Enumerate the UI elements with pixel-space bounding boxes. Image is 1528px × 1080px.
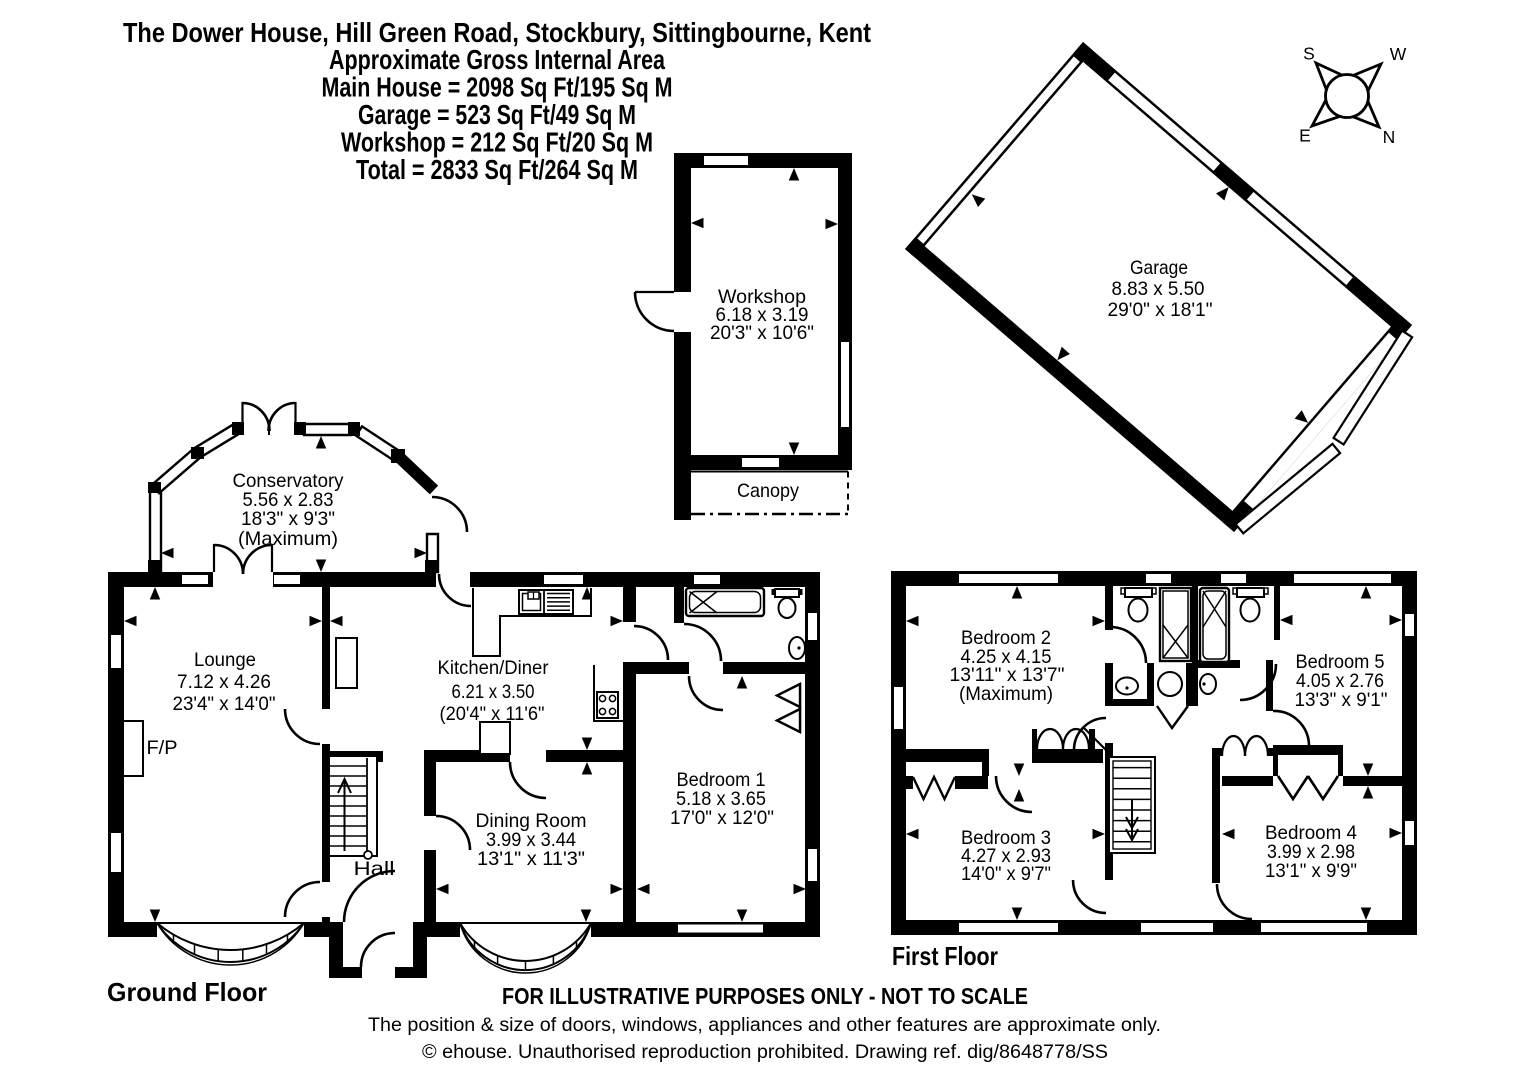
svg-text:20'3" x 10'6": 20'3" x 10'6" [710,322,814,344]
svg-text:13'1" x 9'9": 13'1" x 9'9" [1265,860,1357,882]
svg-text:13'3" x 9'1": 13'3" x 9'1" [1295,689,1388,711]
svg-text:First Floor: First Floor [892,941,998,971]
svg-text:FOR ILLUSTRATIVE PURPOSES ONLY: FOR ILLUSTRATIVE PURPOSES ONLY - NOT TO … [502,983,1028,1009]
svg-text:Main House = 2098 Sq Ft/195 Sq: Main House = 2098 Sq Ft/195 Sq M [322,72,673,103]
svg-text:Kitchen/Diner: Kitchen/Diner [438,657,549,679]
svg-text:29'0" x 18'1": 29'0" x 18'1" [1108,299,1213,321]
svg-text:6.21 x 3.50: 6.21 x 3.50 [452,681,535,703]
svg-text:Ground Floor: Ground Floor [107,977,267,1007]
svg-text:Lounge: Lounge [194,649,256,671]
svg-text:Total = 2833 Sq Ft/264 Sq M: Total = 2833 Sq Ft/264 Sq M [356,154,638,185]
svg-text:W: W [1390,44,1407,64]
svg-text:The position & size of doors,: The position & size of doors, windows, a… [368,1015,1161,1036]
svg-text:23'4" x 14'0": 23'4" x 14'0" [173,693,276,715]
svg-text:(Maximum): (Maximum) [238,528,338,550]
svg-text:13'1" x 11'3": 13'1" x 11'3" [477,848,585,870]
svg-text:S: S [1303,44,1315,64]
svg-text:Garage = 523 Sq Ft/49 Sq M: Garage = 523 Sq Ft/49 Sq M [358,99,636,130]
svg-text:14'0" x 9'7": 14'0" x 9'7" [961,863,1051,885]
svg-text:© ehouse. Unauthorised reprodu: © ehouse. Unauthorised reproduction proh… [422,1042,1108,1063]
svg-text:(Maximum): (Maximum) [959,683,1053,705]
svg-text:Garage: Garage [1130,257,1188,279]
svg-text:E: E [1299,126,1311,146]
svg-text:F/P: F/P [147,737,178,759]
svg-text:Canopy: Canopy [737,480,799,502]
svg-text:Approximate Gross Internal Are: Approximate Gross Internal Area [329,44,665,75]
svg-text:18'3" x 9'3": 18'3" x 9'3" [241,508,335,530]
svg-text:N: N [1383,127,1396,147]
svg-text:17'0" x 12'0": 17'0" x 12'0" [670,807,774,829]
svg-text:(20'4" x 11'6": (20'4" x 11'6" [440,703,545,725]
svg-text:7.12 x 4.26: 7.12 x 4.26 [177,671,271,693]
svg-text:Workshop = 212 Sq Ft/20 Sq M: Workshop = 212 Sq Ft/20 Sq M [341,127,653,158]
svg-text:8.83 x 5.50: 8.83 x 5.50 [1112,278,1205,300]
